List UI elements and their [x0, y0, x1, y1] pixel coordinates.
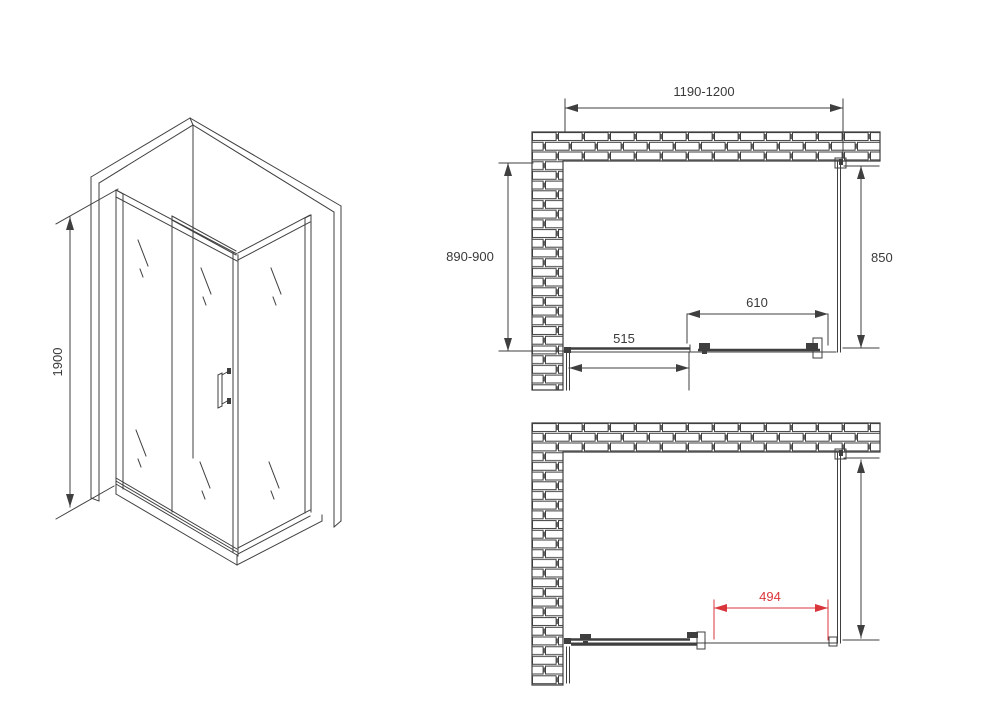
iso-height-dimension: 1900	[50, 189, 118, 519]
bottom-plan-view: 494	[532, 423, 880, 685]
bottom-plan-side-dimension	[843, 458, 879, 640]
top-plan-depth-label: 890-900	[446, 249, 494, 264]
top-plan-side-panel-label: 850	[871, 250, 893, 265]
iso-view: 1900	[50, 118, 341, 565]
top-plan-door-label: 610	[746, 295, 768, 310]
bottom-plan-side-panel	[835, 449, 846, 643]
top-plan-view: 1190-1200 890-900 850 610	[446, 84, 893, 390]
bottom-plan-track	[564, 632, 837, 683]
iso-enclosure-frame	[116, 190, 311, 556]
top-plan-width-label: 1190-1200	[673, 84, 734, 99]
technical-drawing-page: 1900	[0, 0, 1000, 707]
bottom-plan-opening-label: 494	[759, 589, 781, 604]
top-plan-fixed-panel-dimension: 515	[569, 331, 689, 390]
top-plan-side-panel	[835, 158, 846, 352]
top-plan-fixed-panel-label: 515	[613, 331, 635, 346]
iso-walls	[91, 118, 341, 527]
iso-door-handle	[218, 368, 231, 408]
top-plan-door-dimension: 610	[687, 295, 828, 345]
bottom-plan-opening-dimension: 494	[714, 589, 828, 640]
iso-height-label: 1900	[50, 348, 65, 377]
top-plan-track	[564, 338, 836, 390]
iso-glass-reflections	[136, 240, 281, 499]
technical-drawing: 1900	[0, 0, 1000, 707]
top-plan-side-panel-dimension: 850	[843, 166, 893, 348]
